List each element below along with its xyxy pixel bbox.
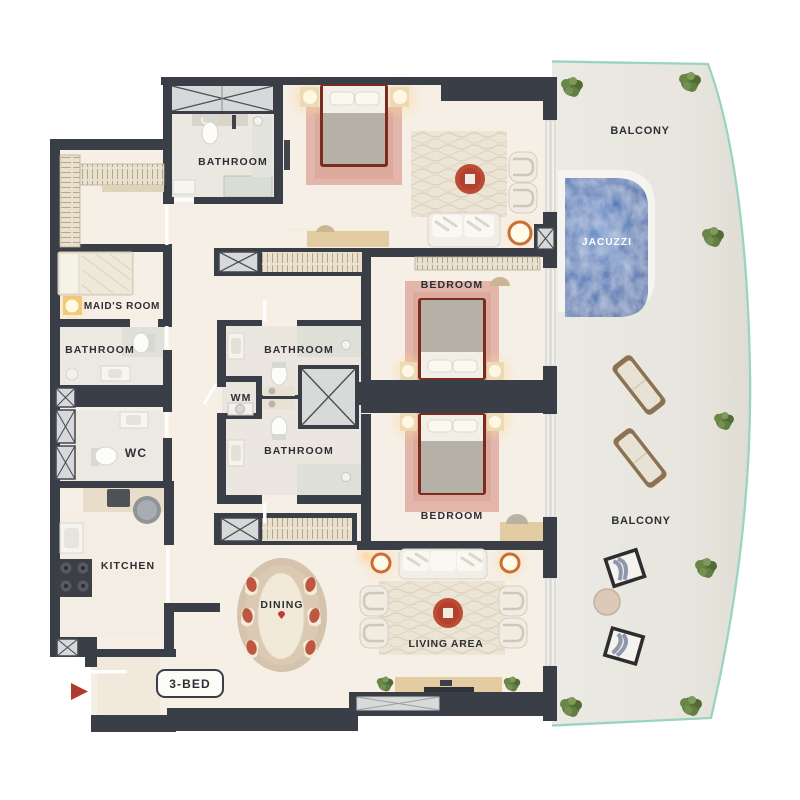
svg-text:WM: WM (231, 392, 252, 404)
svg-text:BATHROOM: BATHROOM (264, 445, 334, 457)
svg-text:BATHROOM: BATHROOM (264, 344, 334, 356)
svg-text:JACUZZI: JACUZZI (582, 237, 632, 248)
svg-text:WC: WC (125, 446, 147, 460)
svg-text:BATHROOM: BATHROOM (198, 156, 268, 168)
svg-text:BEDROOM: BEDROOM (421, 510, 484, 522)
svg-text:3-BED: 3-BED (169, 677, 211, 691)
svg-text:BALCONY: BALCONY (611, 515, 670, 527)
svg-text:BALCONY: BALCONY (610, 125, 669, 137)
svg-text:KITCHEN: KITCHEN (101, 560, 155, 572)
svg-text:LIVING AREA: LIVING AREA (409, 638, 484, 650)
svg-text:BATHROOM: BATHROOM (65, 344, 135, 356)
svg-text:DINING: DINING (260, 599, 303, 611)
svg-text:BEDROOM: BEDROOM (421, 279, 484, 291)
svg-text:MAID'S ROOM: MAID'S ROOM (84, 301, 160, 312)
